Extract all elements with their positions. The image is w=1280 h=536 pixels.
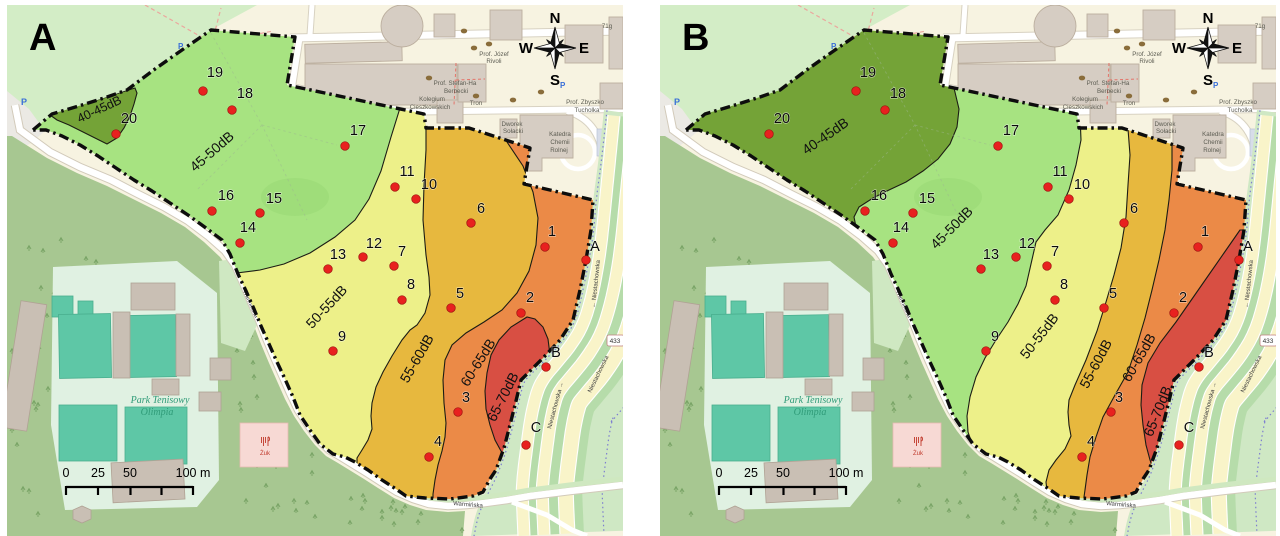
svg-text:S: S xyxy=(550,72,560,89)
svg-text:N: N xyxy=(550,10,561,27)
svg-text:B: B xyxy=(682,17,709,59)
svg-text:50: 50 xyxy=(123,466,137,480)
svg-text:0: 0 xyxy=(63,466,70,480)
svg-text:S: S xyxy=(1203,72,1213,89)
svg-text:50: 50 xyxy=(776,466,790,480)
svg-text:E: E xyxy=(579,40,589,57)
svg-text:100 m: 100 m xyxy=(829,466,864,480)
svg-text:N: N xyxy=(1203,10,1214,27)
svg-text:25: 25 xyxy=(744,466,758,480)
svg-text:A: A xyxy=(29,17,56,59)
svg-text:0: 0 xyxy=(716,466,723,480)
svg-text:W: W xyxy=(1172,40,1187,57)
svg-text:100 m: 100 m xyxy=(176,466,211,480)
svg-text:25: 25 xyxy=(91,466,105,480)
svg-text:E: E xyxy=(1232,40,1242,57)
svg-text:W: W xyxy=(519,40,534,57)
